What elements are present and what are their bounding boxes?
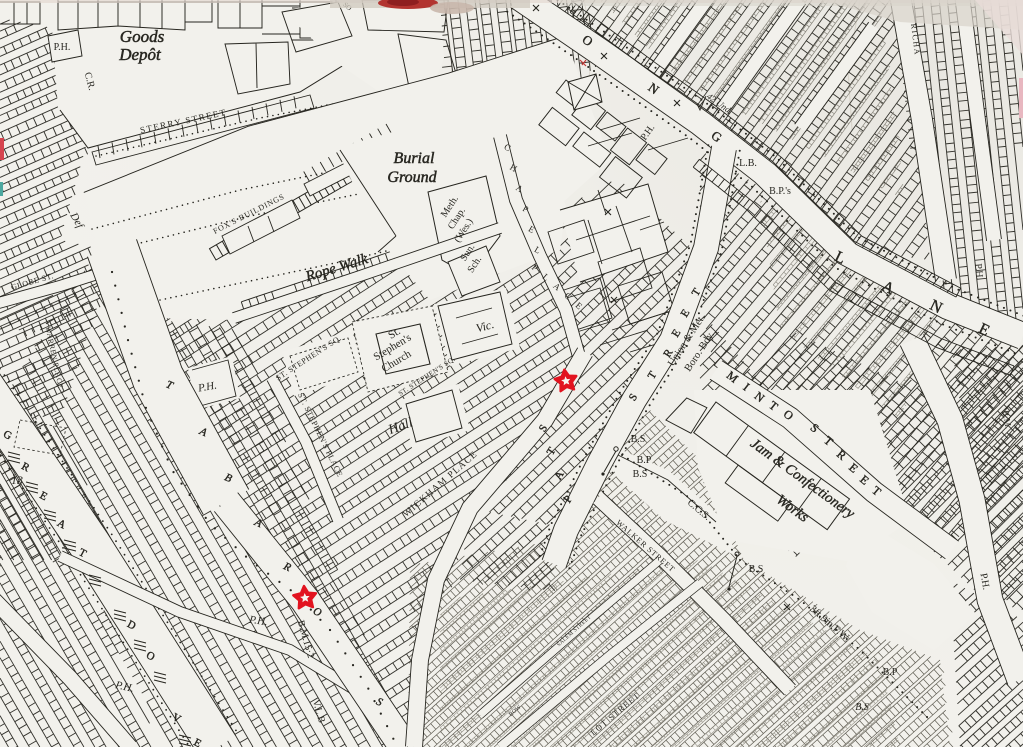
- svg-text:Burial: Burial: [394, 150, 435, 167]
- svg-text:B.S: B.S: [855, 702, 869, 713]
- svg-text:P.H.: P.H.: [54, 42, 71, 53]
- svg-text:B.P: B.P: [883, 667, 898, 678]
- svg-text:B.S: B.S: [633, 469, 648, 480]
- svg-text:Ground: Ground: [387, 169, 437, 186]
- svg-text:B.S: B.S: [749, 564, 764, 575]
- svg-text:13: 13: [11, 473, 23, 487]
- svg-text:Depôt: Depôt: [118, 45, 162, 64]
- svg-text:L.B.: L.B.: [739, 158, 757, 169]
- svg-text:P.H.: P.H.: [972, 263, 984, 281]
- svg-text:Goods: Goods: [120, 27, 165, 46]
- svg-text:B.P.'s: B.P.'s: [769, 186, 791, 197]
- svg-text:B.P: B.P: [637, 455, 652, 466]
- svg-text:B.S: B.S: [631, 434, 646, 445]
